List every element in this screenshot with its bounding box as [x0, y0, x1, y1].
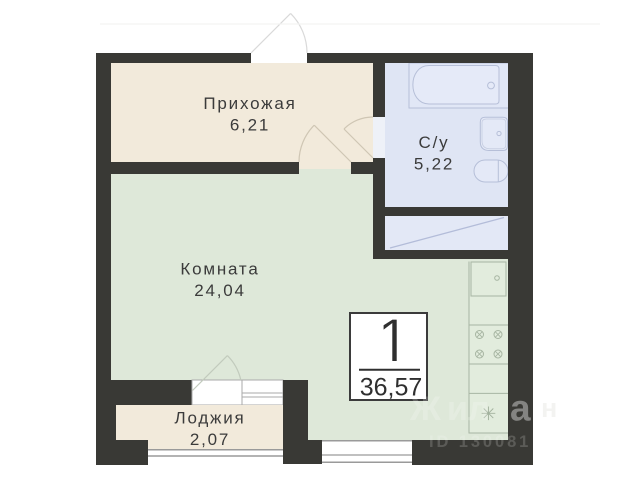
- svg-text:ил: ил: [447, 390, 490, 428]
- svg-text:Прихожая: Прихожая: [203, 94, 296, 113]
- svg-text:н: н: [541, 393, 557, 423]
- svg-text:Лоджия: Лоджия: [174, 409, 245, 428]
- svg-text:6,21: 6,21: [230, 116, 270, 135]
- svg-text:а: а: [510, 388, 531, 429]
- svg-text:С/у: С/у: [419, 133, 450, 152]
- svg-text:24,04: 24,04: [194, 281, 246, 300]
- svg-text:Ж: Ж: [409, 390, 441, 428]
- svg-text:Комната: Комната: [180, 260, 259, 279]
- svg-text:5,22: 5,22: [414, 155, 454, 174]
- svg-text:2,07: 2,07: [190, 430, 230, 449]
- svg-text:ID 130081: ID 130081: [429, 433, 531, 451]
